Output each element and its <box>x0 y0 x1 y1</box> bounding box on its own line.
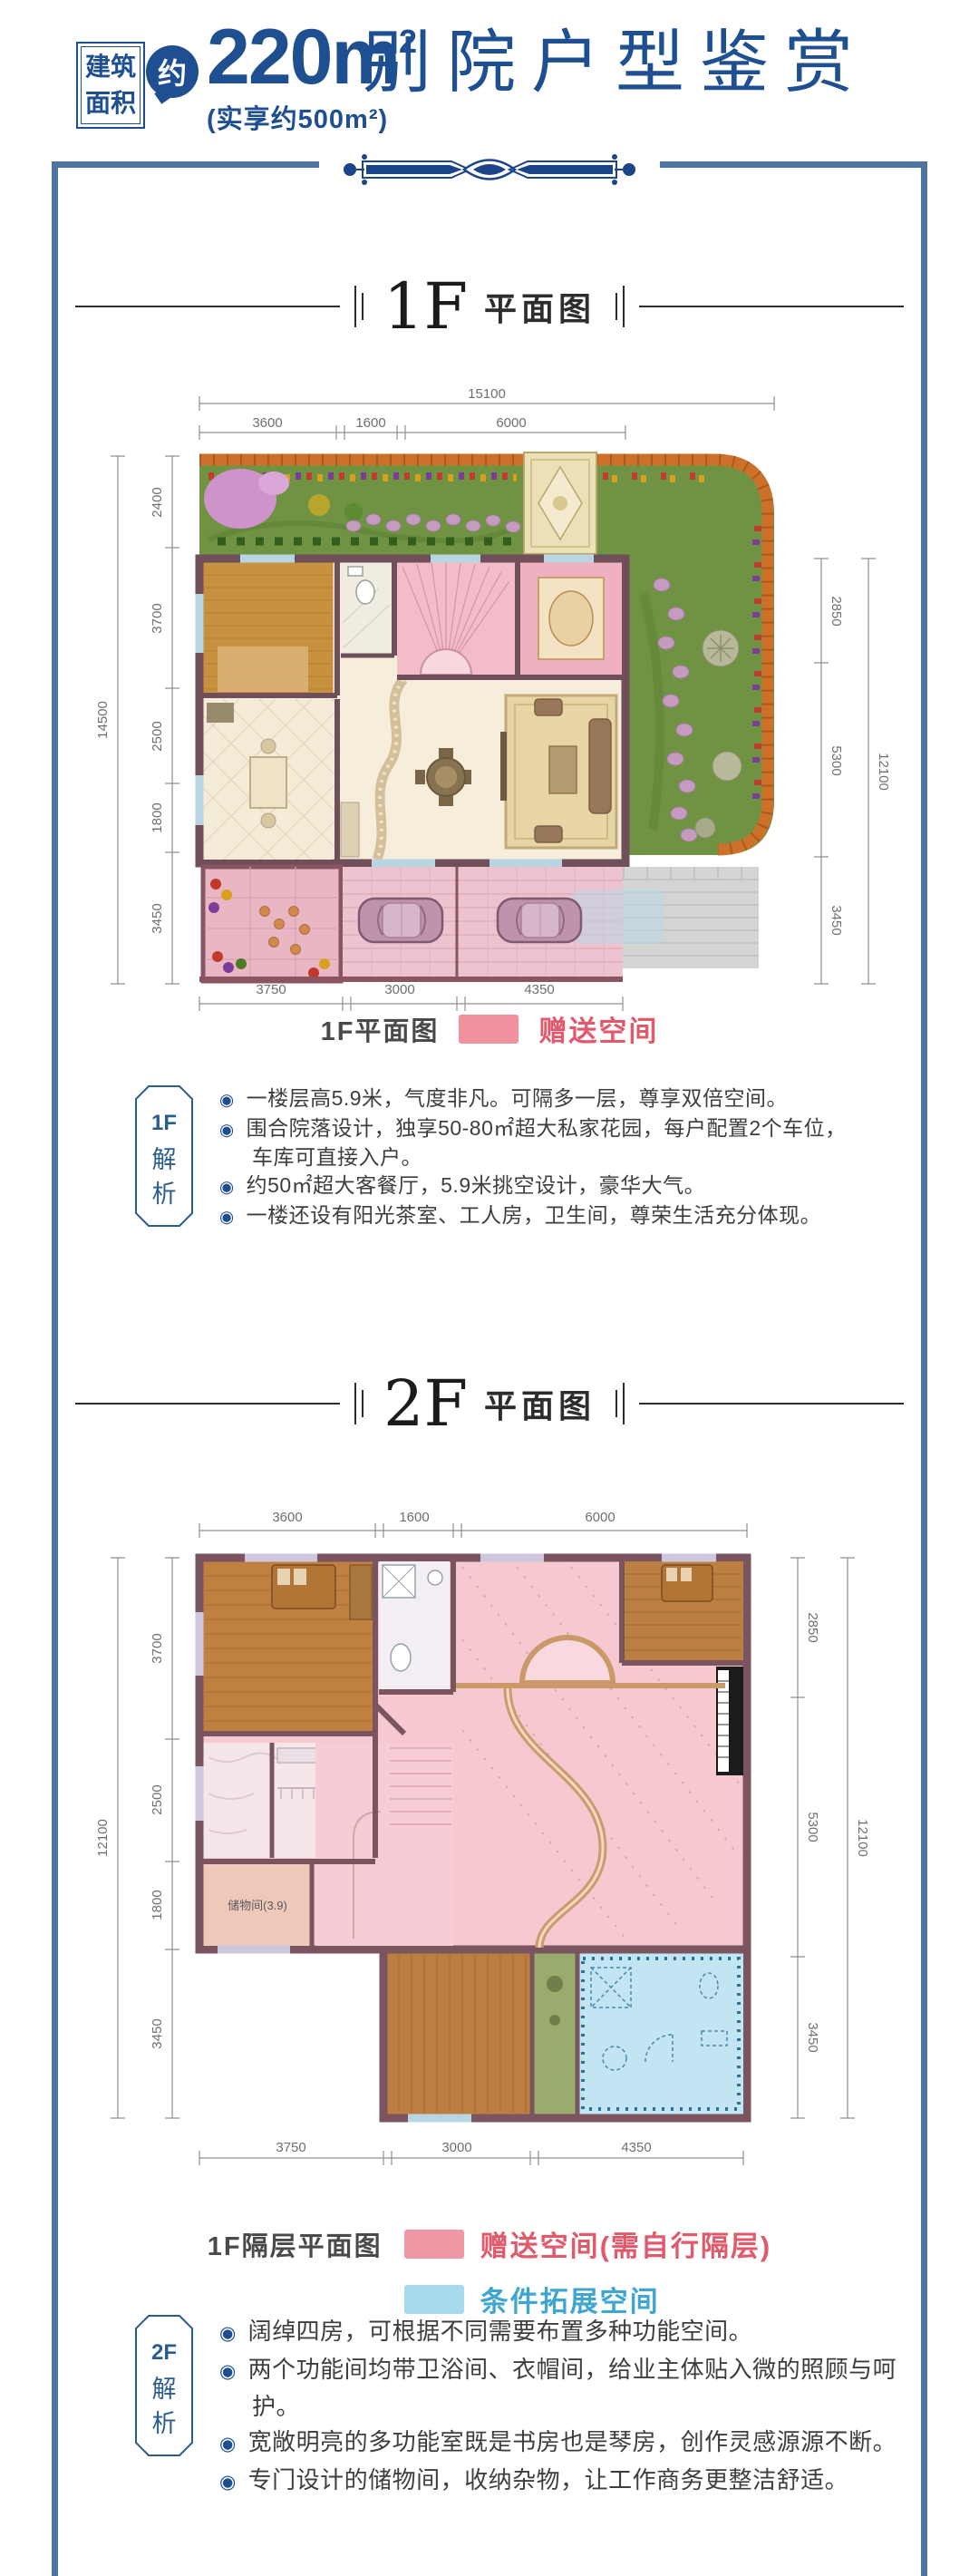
dim-label: 2500 <box>150 721 165 751</box>
dim-label: 2400 <box>150 487 165 517</box>
dim-label: 15100 <box>468 386 506 402</box>
tag-floor: 2F <box>151 2340 177 2365</box>
bullet-item: 两个功能间均带卫浴间、衣帽间，给业主体贴入微的照顾与呵护。 <box>219 2352 926 2424</box>
multifunction-room <box>388 1954 533 2114</box>
legend-2f-label: 1F隔层平面图 <box>208 2225 383 2319</box>
actual-area: (实享约500m²) <box>207 98 388 136</box>
heading-ticks-left <box>354 286 363 327</box>
legend-2f: 1F隔层平面图 赠送空间(需自行隔层) 条件拓展空间 <box>0 2223 979 2319</box>
stair-core <box>315 1743 453 1946</box>
legend-gift-row: 赠送空间(需自行隔层) <box>404 2223 772 2264</box>
dim-label: 3700 <box>150 1633 165 1663</box>
floor-label-1f: 1F <box>383 275 468 338</box>
expand-space-swatch <box>404 2285 464 2314</box>
divider-ornament-icon <box>335 147 644 192</box>
dim-label: 3450 <box>829 905 844 935</box>
cabinet <box>341 802 359 857</box>
building-2f: 储物间(3.9) <box>196 1554 748 2123</box>
dim-label: 5300 <box>805 1812 820 1842</box>
dim-label: 14500 <box>95 701 111 739</box>
dim-label: 3000 <box>441 2140 471 2155</box>
dim-label: 12100 <box>95 1819 111 1857</box>
stair-hall <box>397 562 515 676</box>
tv-cabinet <box>500 732 507 801</box>
floor-suffix-2f: 平面图 <box>484 1380 596 1435</box>
section-heading-1f: 1F 平面图 <box>0 265 979 348</box>
dim-label: 3450 <box>805 2022 820 2052</box>
dim-label: 3750 <box>256 982 286 997</box>
carport-shade <box>571 889 664 944</box>
dim-label: 2850 <box>829 596 844 626</box>
dim-label: 1800 <box>150 1890 165 1920</box>
dim-label: 3000 <box>384 982 414 997</box>
balcony-strip <box>532 1954 577 2114</box>
building-area-badge: 建筑 面积 <box>76 42 145 129</box>
bullet-item: 约50㎡超大客餐厅，5.9米挑空设计，豪华大气。 <box>219 1171 854 1201</box>
dim-label: 6000 <box>585 1510 615 1525</box>
floor-label-2f: 2F <box>383 1372 468 1435</box>
analysis-1f: 1F 解 析 一楼层高5.9米，气度非凡。可隔多一层，尊享双倍空间。 围合院落设… <box>134 1084 870 1231</box>
heading-ticks-right <box>616 1383 625 1424</box>
bullet-item: 专门设计的储物间，收纳杂物，让工作商务更整洁舒适。 <box>219 2463 926 2500</box>
analysis-tag-2f: 2F 解 析 <box>134 2314 194 2457</box>
analysis-2f: 2F 解 析 阔绰四房，可根据不同需要布置多种功能空间。 两个功能间均带卫浴间、… <box>134 2314 932 2501</box>
analysis-2f-bullets: 阔绰四房，可根据不同需要布置多种功能空间。 两个功能间均带卫浴间、衣帽间，给业主… <box>219 2314 926 2501</box>
storage-room: 储物间(3.9) <box>204 1865 312 1946</box>
bedroom-2 <box>622 1561 743 1663</box>
dim-label: 1800 <box>150 802 165 832</box>
storage-room-label: 储物间(3.9) <box>228 1899 287 1912</box>
section-heading-2f: 2F 平面图 <box>0 1362 979 1445</box>
dim-label: 12100 <box>855 1819 870 1857</box>
bullet-item: 一楼层高5.9米，气度非凡。可隔多一层，尊享双倍空间。 <box>219 1084 854 1113</box>
tag-char1: 解 <box>152 2376 177 2403</box>
dim-label: 3600 <box>272 1510 302 1525</box>
bullet-item: 宽敞明亮的多功能室既是书房也是琴房，创作灵感源源不断。 <box>219 2425 926 2462</box>
bullet-item: 围合院落设计，独享50-80㎡超大私家花园，每户配置2个车位，车库可直接入户。 <box>219 1114 854 1171</box>
gift-space-label: 赠送空间(需自行隔层) <box>480 2223 772 2264</box>
dim-label: 5300 <box>829 745 844 775</box>
analysis-1f-bullets: 一楼层高5.9米，气度非凡。可隔多一层，尊享双倍空间。 围合院落设计，独享50-… <box>219 1084 854 1231</box>
dim-label: 1600 <box>399 1510 429 1525</box>
dim-label: 12100 <box>876 753 891 791</box>
bullet-item: 一楼还设有阳光茶室、工人房，卫生间，尊荣生活充分体现。 <box>219 1201 854 1230</box>
dim-label: 2850 <box>805 1612 820 1642</box>
bathroom-2f <box>379 1561 450 1692</box>
badge-line2: 面积 <box>85 85 136 122</box>
dim-label: 6000 <box>496 415 526 431</box>
heading-line-right <box>639 1403 904 1405</box>
legend-1f-label: 1F平面图 <box>321 1010 440 1048</box>
page-title: 别院户型鉴赏 <box>363 22 925 105</box>
dim-label: 4350 <box>524 982 554 997</box>
wood-room <box>204 563 334 696</box>
bathroom <box>341 563 392 654</box>
car-2 <box>498 899 581 942</box>
badge-line1: 建筑 <box>85 49 136 85</box>
entry-hall <box>520 563 622 676</box>
dim-label: 2500 <box>150 1784 165 1814</box>
heading-line-right <box>639 306 904 307</box>
dim-label: 1600 <box>355 415 385 431</box>
gift-space-swatch <box>459 1015 519 1044</box>
tag-char2: 析 <box>152 2410 177 2437</box>
tag-char2: 析 <box>152 1181 177 1208</box>
car-1 <box>359 899 442 942</box>
dim-label: 3750 <box>276 2140 305 2155</box>
approx-bubble: 约 <box>146 45 199 98</box>
heading-ticks-right <box>616 286 625 327</box>
heading-ticks-left <box>354 1383 363 1424</box>
analysis-tag-1f: 1F 解 析 <box>134 1084 194 1228</box>
gift-space-label: 赠送空间 <box>538 1008 658 1049</box>
heading-line-left <box>75 306 340 307</box>
bullet-item: 阔绰四房，可根据不同需要布置多种功能空间。 <box>219 2314 926 2351</box>
dim-label: 3450 <box>150 2018 165 2048</box>
legend-1f: 1F平面图 赠送空间 <box>0 1008 979 1049</box>
dim-label: 3450 <box>150 903 165 933</box>
terrace <box>203 867 341 981</box>
tag-char1: 解 <box>152 1146 177 1173</box>
tag-floor: 1F <box>151 1111 177 1135</box>
dim-label: 3700 <box>150 603 165 633</box>
approx-label: 约 <box>158 51 187 92</box>
gift-space-swatch <box>404 2230 464 2259</box>
floor-suffix-1f: 平面图 <box>484 283 596 338</box>
floor-plan-2f: 储物间(3.9) <box>82 1476 897 2202</box>
dim-label: 3600 <box>252 415 282 431</box>
dim-label: 4350 <box>621 2140 651 2155</box>
expansion-area <box>577 1954 743 2114</box>
floor-plan-1f: 15100 3600 1600 6000 2400 3700 2500 1800… <box>82 376 897 1020</box>
heading-line-left <box>75 1403 340 1405</box>
garden-gate <box>524 452 596 554</box>
